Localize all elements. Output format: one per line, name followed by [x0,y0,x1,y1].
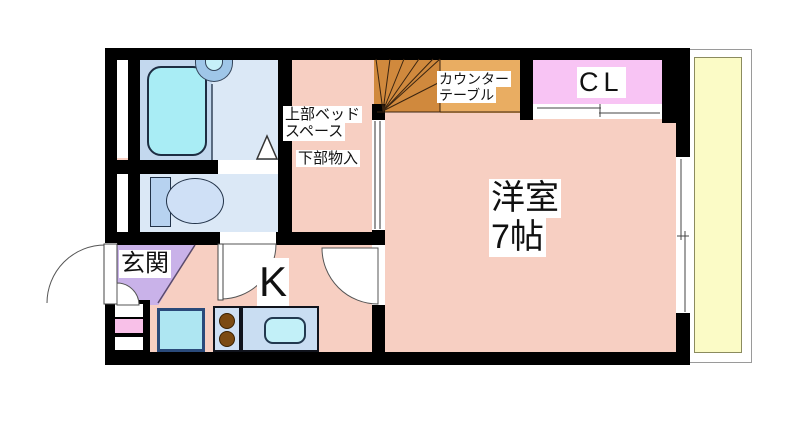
bed-space-label: 上部ベッド スペース [283,106,362,141]
genkan-label: 玄関 [119,250,171,278]
counter-table-label: カウンター テーブル [437,71,511,103]
kitchen-label: K [257,258,289,306]
western-room-label: 洋室 7帖 [489,179,561,257]
kitchen-sink [264,317,306,344]
bathtub [147,66,207,156]
toilet-door-opening [220,232,276,245]
washer-space [157,308,205,352]
wall-bathroom-right [278,48,292,245]
closet-sliding-door [533,104,662,119]
room-door-opening [372,245,385,305]
bed-space-partition [372,120,385,230]
under-bed-storage-label: 下部物入 [296,150,360,167]
balcony-window [676,157,690,313]
utility-box-white-2 [115,337,143,350]
bed-space-floor [292,58,374,232]
wall-closet-left [520,48,533,120]
window-left-toilet [117,174,128,232]
window-left-bath [117,60,128,158]
bathroom-door-opening [218,160,278,174]
wall-left-inner [128,48,140,245]
closet-label: CL [577,67,626,98]
utility-box-white-1 [115,304,143,317]
toilet-bowl [166,178,224,224]
stove-unit [213,306,241,352]
entrance-door-arc [47,245,105,303]
stove-burner [219,331,235,347]
stove-burner [219,313,235,329]
floor-plan: 玄関 K 洋室 7帖 CL 上部ベッド スペース 下部物入 カウンター テーブル [0,0,800,427]
wall-bottom [105,352,690,365]
kitchen-counter [241,306,319,352]
utility-box-pink [115,319,143,333]
entrance-door-opening [105,243,117,304]
wall-top [105,48,690,60]
balcony-floor [694,57,742,353]
